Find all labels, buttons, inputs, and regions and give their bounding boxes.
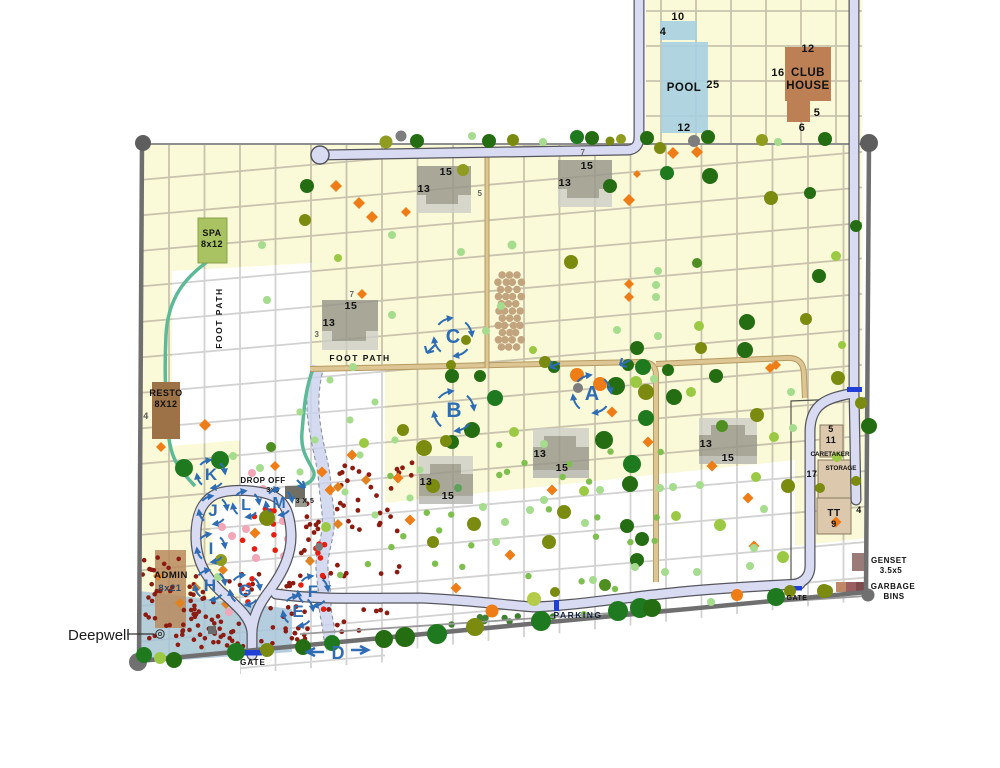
- svg-text:10: 10: [671, 11, 684, 23]
- svg-text:BINS: BINS: [883, 592, 904, 601]
- svg-text:FOOT PATH: FOOT PATH: [214, 287, 224, 348]
- svg-text:SPA: SPA: [202, 228, 221, 238]
- svg-text:3: 3: [315, 330, 320, 339]
- svg-text:12: 12: [801, 43, 814, 55]
- svg-text:FOOT PATH: FOOT PATH: [329, 353, 390, 363]
- svg-text:PARKING: PARKING: [553, 610, 602, 620]
- svg-text:G: G: [238, 581, 251, 600]
- svg-text:13: 13: [700, 438, 713, 450]
- svg-text:7: 7: [350, 290, 355, 299]
- svg-text:TT: TT: [827, 508, 840, 519]
- svg-text:CARETAKER: CARETAKER: [810, 451, 850, 458]
- svg-text:L: L: [241, 497, 251, 514]
- svg-text:11: 11: [826, 435, 837, 445]
- svg-text:3.5x5: 3.5x5: [880, 566, 903, 575]
- svg-text:5: 5: [828, 424, 834, 434]
- svg-text:15: 15: [556, 462, 569, 474]
- svg-text:CLUB: CLUB: [791, 67, 825, 79]
- svg-text:15: 15: [581, 160, 594, 172]
- svg-text:15: 15: [440, 166, 453, 178]
- svg-text:STORAGE: STORAGE: [825, 465, 856, 472]
- svg-text:GATE: GATE: [240, 658, 266, 667]
- svg-text:GENSET: GENSET: [871, 556, 907, 565]
- svg-text:15: 15: [345, 300, 358, 312]
- svg-text:13: 13: [418, 183, 431, 195]
- svg-text:16: 16: [771, 67, 784, 79]
- svg-text:Deepwell: Deepwell: [68, 627, 130, 644]
- svg-text:15: 15: [442, 490, 455, 502]
- svg-text:8x12: 8x12: [201, 239, 223, 249]
- svg-text:H: H: [204, 576, 216, 595]
- svg-text:B: B: [446, 399, 461, 422]
- svg-text:5: 5: [814, 107, 821, 119]
- svg-text:J: J: [208, 501, 217, 520]
- svg-text:8X12: 8X12: [154, 399, 177, 409]
- svg-text:F: F: [308, 582, 318, 601]
- svg-text:E: E: [292, 602, 303, 621]
- svg-text:POOL: POOL: [667, 82, 702, 94]
- svg-text:4: 4: [856, 505, 862, 515]
- svg-text:9: 9: [831, 519, 837, 529]
- svg-text:M: M: [272, 495, 285, 512]
- svg-text:12: 12: [677, 122, 690, 134]
- svg-text:25: 25: [706, 79, 719, 91]
- svg-text:GARBAGE: GARBAGE: [871, 582, 916, 591]
- svg-text:3 X 5: 3 X 5: [296, 498, 315, 505]
- svg-text:GATE: GATE: [787, 595, 808, 602]
- svg-text:I: I: [209, 539, 214, 558]
- svg-text:A: A: [585, 383, 599, 405]
- svg-text:HOUSE: HOUSE: [786, 80, 829, 92]
- svg-text:7: 7: [581, 148, 586, 157]
- svg-text:13: 13: [420, 476, 433, 488]
- svg-text:RESTO: RESTO: [149, 388, 182, 398]
- svg-text:4: 4: [660, 26, 667, 38]
- svg-text:6: 6: [799, 122, 806, 134]
- svg-text:5: 5: [478, 189, 483, 198]
- svg-text:4: 4: [143, 411, 149, 421]
- svg-text:K: K: [205, 465, 218, 484]
- svg-text:13: 13: [323, 317, 336, 329]
- svg-text:ADMIN: ADMIN: [154, 570, 188, 581]
- svg-text:DROP OFF: DROP OFF: [240, 476, 285, 485]
- svg-text:C: C: [446, 326, 460, 348]
- svg-text:D: D: [332, 643, 345, 663]
- svg-text:17: 17: [806, 469, 817, 479]
- svg-text:13: 13: [559, 177, 572, 189]
- svg-text:15: 15: [722, 452, 735, 464]
- svg-text:13: 13: [534, 448, 547, 460]
- svg-text:8x21: 8x21: [158, 583, 181, 594]
